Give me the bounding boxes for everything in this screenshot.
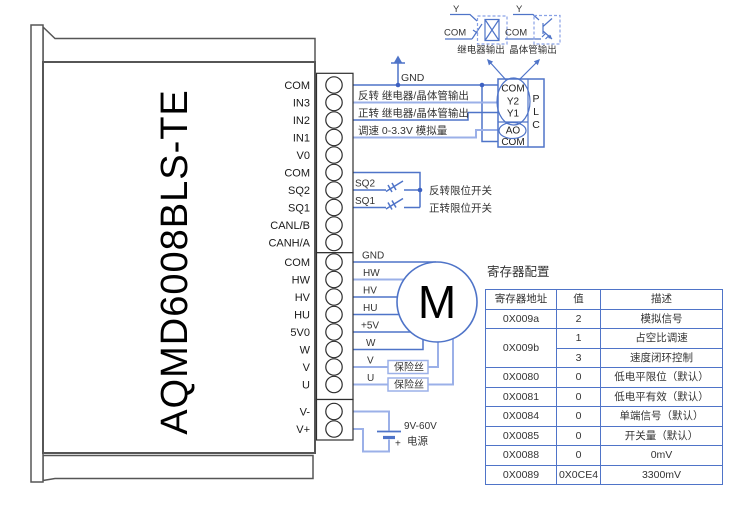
cell-value: 0 [557,368,601,388]
relay-output-symbol: Y COM 继电器输出 [444,4,507,56]
forward-limit-label: 正转限位开关 [429,202,492,215]
terminal-label: V [303,362,311,374]
plc-letter-c: C [532,119,540,131]
terminal-screw-com [326,77,342,93]
device-outline: AQMD6008BLS-TE [31,25,315,482]
terminal-screw-com3 [326,254,342,270]
forward-output-label: 正转 继电器/晶体管输出 [358,107,469,120]
table-row: 0X009b 1 占空比调速 [486,329,723,349]
cell-value: 0 [557,426,601,446]
table-row: 0X0081 0 低电平有效（默认） [486,387,723,407]
plc-letter-l: L [533,106,539,118]
ground-arrow-icon [394,56,402,63]
hv-label: HV [363,286,377,297]
cell-desc: 开关量（默认） [601,426,723,446]
cell-desc: 模拟信号 [601,309,723,329]
terminal-blocks [317,73,354,440]
register-table-title: 寄存器配置 [487,261,725,280]
transistor-com-label: COM [505,28,527,39]
sq1-wire-label: SQ1 [355,196,375,207]
plc-com-top: COM [501,84,524,95]
terminal-label: HU [294,310,310,322]
terminal-label: COM [284,257,310,269]
sq2-wire-label: SQ2 [355,179,375,190]
cell-desc: 低电平限位（默认） [601,368,723,388]
output-type-arrows [488,60,539,80]
cell-addr: 0X0089 [486,465,557,485]
table-row: 0X0085 0 开关量（默认） [486,426,723,446]
fuse-label-u: 保险丝 [394,378,424,391]
table-row: 0X0084 0 单端信号（默认） [486,407,723,427]
device-model-label: AQMD6008BLS-TE [154,89,196,435]
cell-desc: 低电平有效（默认） [601,387,723,407]
relay-output-label: 继电器输出 [457,44,505,56]
junction-dot [396,83,401,88]
terminal-label: CANH/A [268,238,310,250]
relay-coil-icon [485,20,499,41]
voltage-range-label: 9V-60V [404,421,437,432]
terminal-screw-in1 [326,129,342,145]
device-top-flange [43,27,315,62]
terminal-label: SQ1 [288,203,310,215]
relay-y-wire [450,15,477,22]
terminal-screw-hw [326,271,342,287]
plc-letter-p: P [532,93,539,105]
cell-desc: 0mV [601,446,723,466]
terminal-screw-w [326,341,342,357]
plc-y1: Y1 [507,109,520,120]
device-bottom-flange [43,456,313,481]
terminal-label: COM [284,80,310,92]
terminal-screw-5v0 [326,324,342,340]
table-row: 0X0089 0X0CE4 3300mV [486,465,723,485]
terminal-screw-sq2 [326,182,342,198]
cell-addr: 0X0088 [486,446,557,466]
hu-label: HU [363,303,377,314]
terminal-label: CANL/B [270,220,310,232]
cell-value: 0 [557,387,601,407]
junction-dot [418,188,423,193]
terminal-label: 5V0 [290,327,310,339]
table-row: 0X0088 0 0mV [486,446,723,466]
plc-y2: Y2 [507,97,520,108]
header-value: 值 [557,290,601,310]
power-supply-label: 电源 [407,435,428,448]
terminal-screw-u [326,376,342,392]
cell-value: 0X0CE4 [557,465,601,485]
cell-addr: 0X009b [486,329,557,368]
table-row: 0X0080 0 低电平限位（默认） [486,368,723,388]
terminal-screw-com2 [326,164,342,180]
motor-section: GND HW HV HU +5V W V U 保险丝 保险丝 M [361,251,477,392]
terminal-label: IN3 [293,98,310,110]
u-label: U [367,373,374,384]
terminal-screw-canha [326,234,342,250]
hw-label: HW [363,268,380,279]
cell-addr: 0X0085 [486,426,557,446]
cell-addr: 0X009a [486,309,557,329]
terminal-screw-hv [326,289,342,305]
terminal-label: IN1 [293,133,310,145]
plc-ao: AO [506,126,521,137]
cell-value: 0 [557,407,601,427]
5v-label: +5V [361,321,379,332]
cell-addr: 0X0080 [486,368,557,388]
signal-labels: GND 反转 继电器/晶体管输出 正转 继电器/晶体管输出 调速 0-3.3V … [355,72,492,215]
relay-y-label: Y [453,4,460,15]
terminal-screw-canlb [326,217,342,233]
cell-value: 3 [557,348,601,368]
terminal-screw-sq1 [326,199,342,215]
cell-desc: 3300mV [601,465,723,485]
cell-value: 0 [557,446,601,466]
transistor-y-label: Y [516,4,523,15]
junction-dot [480,83,485,88]
terminal-label: V- [300,407,311,419]
header-address: 寄存器地址 [486,290,557,310]
register-table: 寄存器地址 值 描述 0X009a 2 模拟信号 0X009b 1 占空比调速 … [485,289,723,485]
plus-sign: + [395,439,401,450]
terminal-screw-vminus [326,403,342,419]
terminal-screw-in2 [326,112,342,128]
terminal-label: HV [295,292,311,304]
terminal-label: U [302,380,310,392]
motor-gnd-label: GND [362,251,384,262]
heatsink-plate [31,25,43,482]
terminal-screw-v0 [326,147,342,163]
fuse-label-v: 保险丝 [394,361,424,374]
table-row: 0X009a 2 模拟信号 [486,309,723,329]
terminal-label: V0 [297,150,310,162]
terminal-screw-v [326,359,342,375]
terminal-screw-in3 [326,94,342,110]
terminal-screw-hu [326,306,342,322]
motor-label: M [418,276,456,328]
speed-analog-label: 调速 0-3.3V 模拟量 [358,124,448,137]
cell-addr: 0X0081 [486,387,557,407]
cell-value: 1 [557,329,601,349]
terminal-label: V+ [296,424,310,436]
terminal-label: W [300,345,311,357]
register-config: 寄存器配置 寄存器地址 值 描述 0X009a 2 模拟信号 0X009b 1 … [485,261,725,485]
terminal-label: HW [292,275,311,287]
cell-desc: 占空比调速 [601,329,723,349]
transistor-output-label: 晶体管输出 [509,44,557,56]
reverse-output-label: 反转 继电器/晶体管输出 [358,89,469,102]
power-supply: + 9V-60V 电源 [377,421,437,450]
transistor-output-symbol: Y COM 晶体管输出 [505,4,560,56]
w-label: W [366,338,376,349]
gnd-label: GND [401,72,425,84]
terminal-label: COM [284,168,310,180]
terminal-label: SQ2 [288,185,310,197]
terminal-label: IN2 [293,115,310,127]
relay-com-label: COM [444,28,466,39]
table-header-row: 寄存器地址 值 描述 [486,290,723,310]
terminal-screw-vplus [326,421,342,437]
cell-desc: 速度闭环控制 [601,348,723,368]
cell-desc: 单端信号（默认） [601,407,723,427]
cell-value: 2 [557,309,601,329]
header-desc: 描述 [601,290,723,310]
cell-addr: 0X0084 [486,407,557,427]
v-label: V [367,356,374,367]
reverse-limit-label: 反转限位开关 [429,184,492,197]
wire-vminus [353,412,389,431]
